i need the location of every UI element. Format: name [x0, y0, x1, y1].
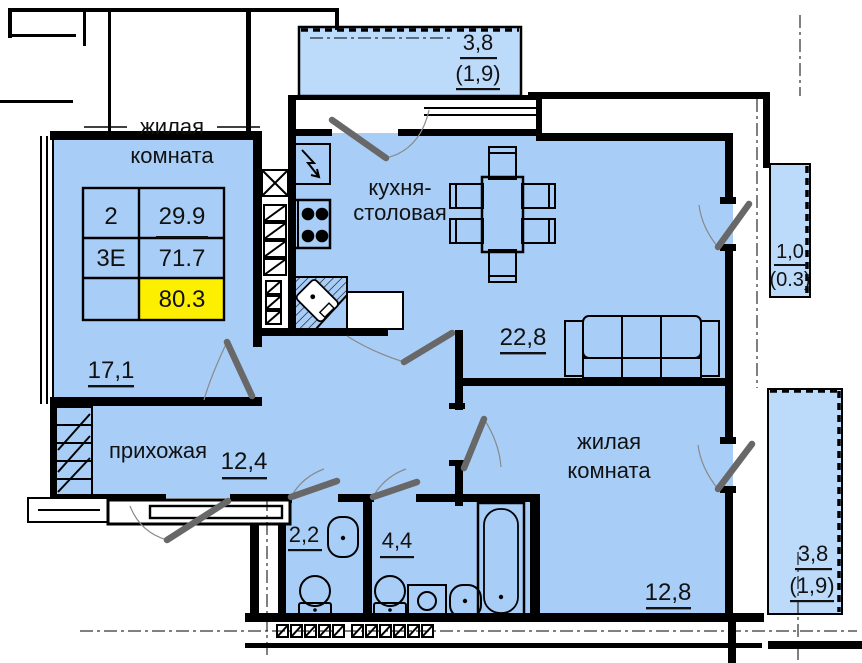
apartment-info-table-part [156, 236, 208, 238]
kitchen-label: столовая [353, 200, 447, 225]
room-labels-part [88, 385, 134, 387]
parapet-line [8, 34, 76, 37]
living2-label: жилая [577, 429, 641, 454]
stove-part [316, 230, 329, 243]
vent-shafts-part [264, 205, 286, 221]
wc-area: 2,2 [289, 522, 320, 547]
window-left [40, 136, 42, 404]
bathtub-part [499, 595, 503, 599]
wall-living2-right-b [725, 490, 733, 620]
wc-sink-part [341, 536, 345, 540]
vent-shafts [262, 170, 288, 324]
wall-kitchen-top-right [540, 133, 733, 141]
balcony-labels-part [774, 264, 807, 266]
door-jamb [449, 403, 465, 409]
vent-shafts-part [264, 259, 286, 275]
wall-kitchen-top-a [288, 129, 332, 136]
parapet-line [83, 10, 86, 46]
vent-shafts-part [266, 311, 281, 324]
wall-top-right-outer [528, 92, 770, 99]
room-labels-part [222, 477, 267, 479]
hallway-area: 12,4 [221, 448, 268, 475]
wall-hall-living2-a [455, 330, 463, 410]
wall-bottom-right-horizontal [768, 641, 862, 649]
window-kitchen-top [424, 107, 538, 109]
wall-kitchen-living2 [455, 378, 733, 386]
room-labels-part [288, 549, 322, 551]
wall-kitchen-right-b [725, 248, 733, 385]
balcony-bottom-area: 3,8 [798, 541, 829, 566]
wall-bath-top [416, 494, 540, 502]
living-area-value: 29.9 [159, 203, 206, 230]
room-labels-part [500, 352, 546, 354]
wall-left-lower [50, 397, 57, 503]
wall-living1-bottom [50, 397, 262, 406]
parapet-line [8, 8, 12, 38]
door-jamb [720, 197, 736, 204]
balcony-top-area: 3,8 [463, 30, 494, 55]
rooms-count: 2 [104, 203, 117, 230]
balcony-labels-part [456, 88, 500, 90]
wall-living1-right [253, 131, 262, 347]
parapet-line [108, 12, 111, 132]
balcony-labels-part [790, 600, 834, 602]
wall-bottom-main [245, 613, 764, 622]
living2-area: 12,8 [645, 579, 692, 606]
balcony-bottom-reduced: (1,9) [789, 573, 834, 598]
passage-floor [258, 330, 460, 405]
bathroom-area: 4,4 [382, 528, 413, 553]
vent-shafts-part [264, 241, 286, 257]
room-labels-part [646, 607, 691, 609]
balcony-top-reduced: (1,9) [455, 61, 500, 86]
vent-shafts-part [266, 296, 281, 309]
vent-shafts-part [264, 223, 286, 239]
kitchen-counter [347, 292, 403, 329]
bath-sink-part [463, 599, 467, 603]
stove-part [316, 208, 329, 221]
wall-wc-bath-divider [363, 494, 372, 620]
kitchen-area: 22,8 [500, 324, 547, 351]
toilet-part [313, 608, 317, 612]
wc-floor [281, 497, 367, 618]
wall-right-upper [763, 92, 770, 168]
total-area-value: 80.3 [159, 286, 206, 313]
wall-kitchen-right-a [725, 141, 733, 204]
entrance-porch [28, 498, 290, 524]
toilet-part [388, 608, 392, 612]
wall-kitchen-bottom [256, 328, 388, 336]
wall-living2-right-a [725, 386, 733, 444]
living1-label: жилая [140, 114, 204, 139]
apartment-type: 3Е [96, 245, 125, 272]
balcony-right-area: 1,0 [776, 241, 804, 263]
parapet-line [246, 10, 251, 134]
stove-part [302, 208, 315, 221]
living2-label: комната [567, 458, 651, 483]
door-jamb [720, 437, 736, 444]
balcony-labels-part [460, 57, 497, 59]
balcony-labels-part [795, 568, 832, 570]
window-left [46, 136, 48, 404]
wall-bottom-line [245, 643, 762, 648]
room-labels-part [380, 556, 414, 558]
hallway-label: прихожая [109, 438, 207, 463]
window-left [52, 136, 54, 404]
balcony-right-reduced: (0.3) [769, 269, 810, 291]
parapet-line [0, 100, 73, 103]
wall-bottom-right-vertical [728, 622, 736, 663]
parapet-line [8, 8, 339, 12]
living1-label: комната [130, 143, 214, 168]
kitchen-label: кухня- [368, 175, 431, 200]
stove-part [302, 230, 315, 243]
wall-bath-right [530, 494, 540, 620]
area-no-balcony-value: 71.7 [159, 245, 206, 272]
floor-plan-canvas: 2 29.9 3Е 71.7 80.3 жилая комната 17,1 к… [0, 0, 862, 663]
window-kitchen-top [424, 114, 538, 116]
vent-shafts-part [266, 281, 281, 294]
floor-plan: 2 29.9 3Е 71.7 80.3 жилая комната 17,1 к… [0, 0, 862, 663]
living1-area: 17,1 [88, 357, 135, 384]
